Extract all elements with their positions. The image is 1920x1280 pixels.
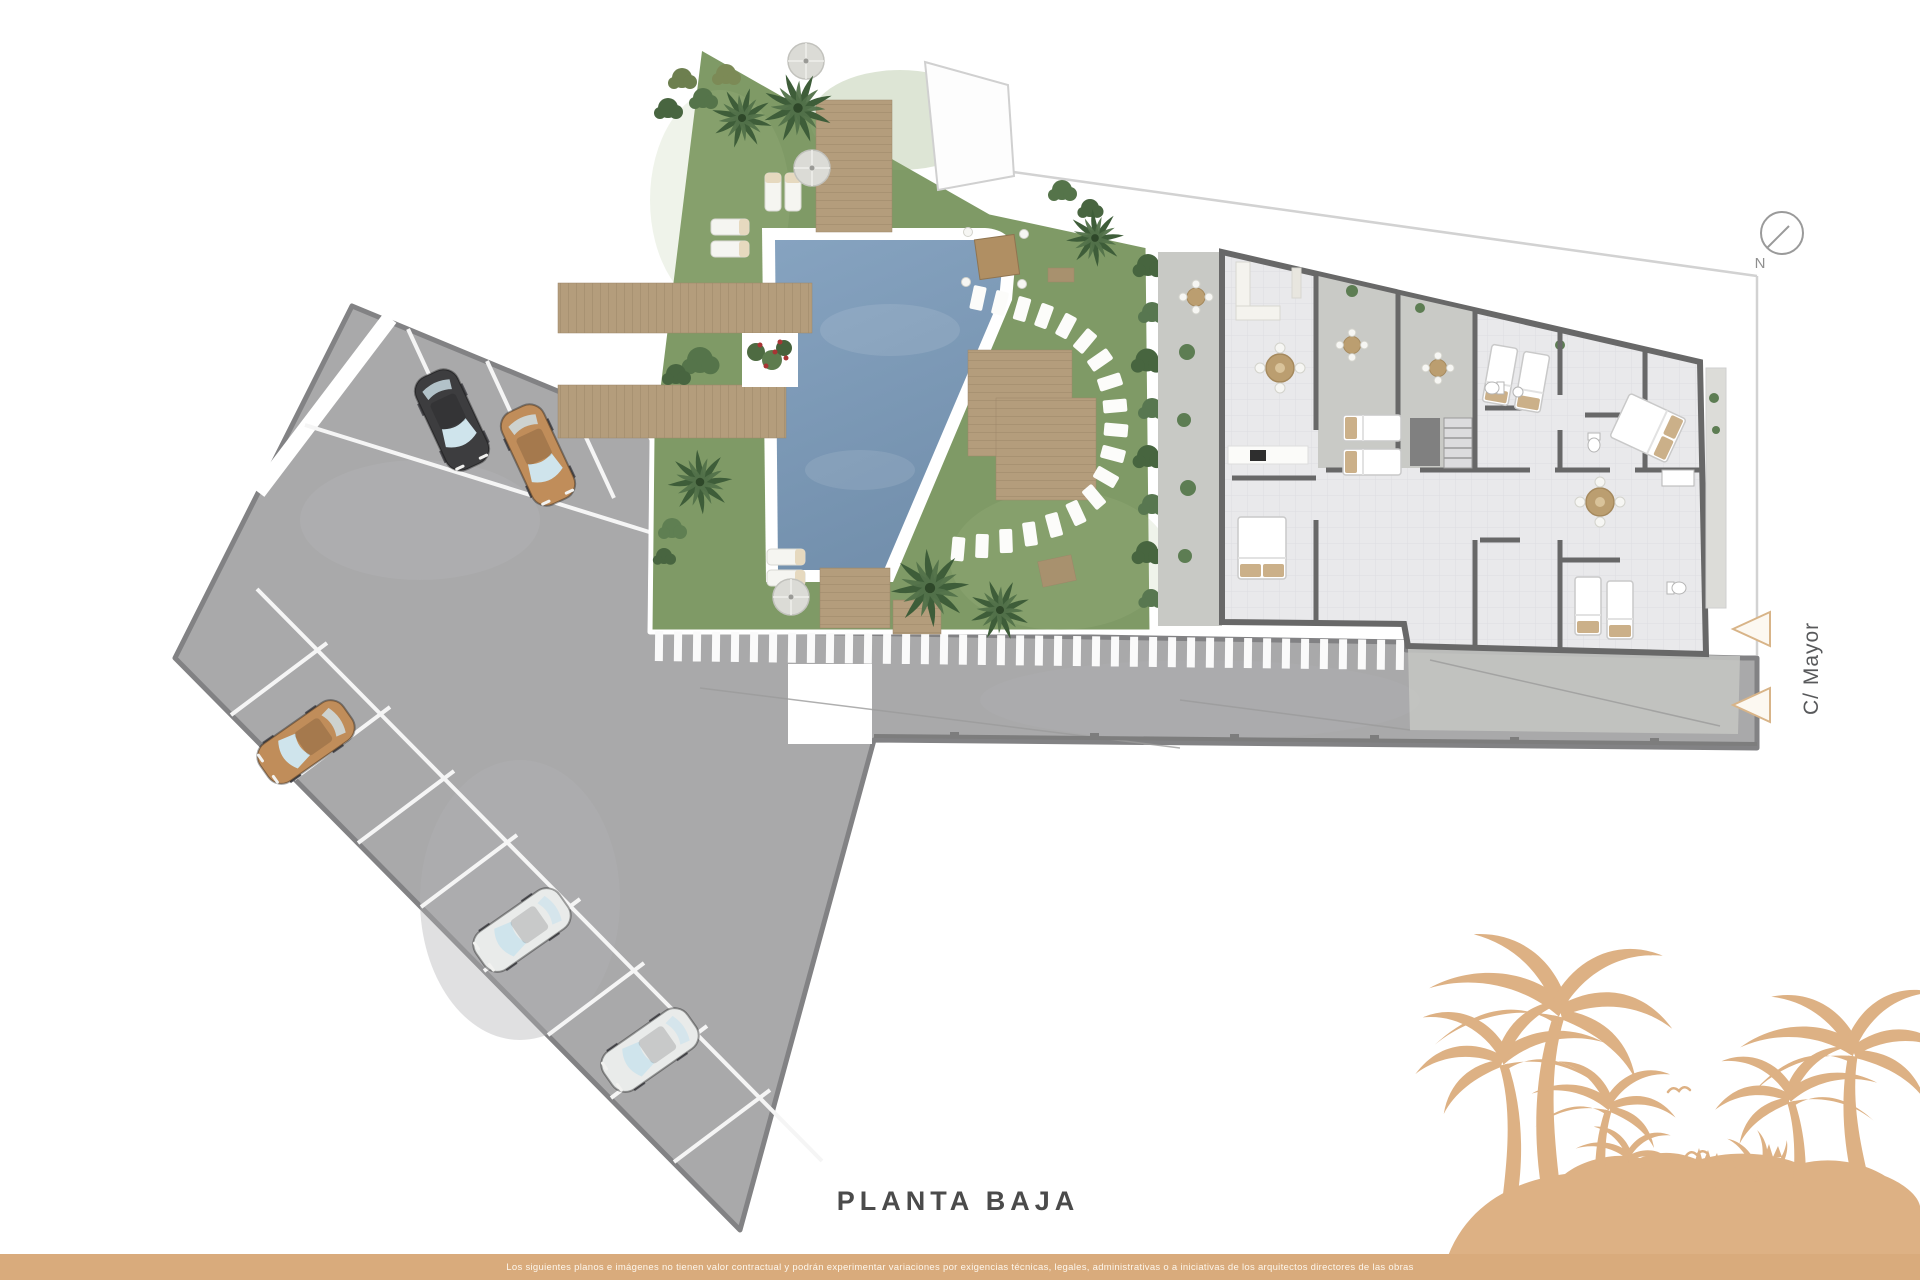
site-plan-page: N C/ Mayor PLANTA BAJA Los siguientes pl… bbox=[0, 0, 1920, 1280]
disclaimer-bar: Los siguientes planos e imágenes no tien… bbox=[0, 1254, 1920, 1280]
compass-icon: N bbox=[1755, 212, 1803, 272]
compass-north-label: N bbox=[1755, 255, 1766, 272]
beach-silhouette bbox=[1415, 934, 1920, 1256]
disclaimer-text: Los siguientes planos e imágenes no tien… bbox=[506, 1262, 1413, 1273]
seagull-icon bbox=[1668, 1087, 1690, 1092]
white-roof-wedge bbox=[925, 62, 1014, 190]
seagull-icon bbox=[1686, 1151, 1708, 1156]
entrance-arrow-icon bbox=[1733, 612, 1770, 646]
entrance-plaza bbox=[1408, 648, 1740, 734]
building-floorplan bbox=[1222, 252, 1726, 654]
site-plan-drawing: N C/ Mayor PLANTA BAJA bbox=[0, 0, 1920, 1280]
elevator bbox=[1410, 418, 1440, 466]
garden-area bbox=[558, 43, 1170, 652]
terrace-strip bbox=[1158, 252, 1222, 626]
staircase bbox=[1444, 418, 1472, 468]
umbrella-icon bbox=[773, 579, 809, 615]
side-terrace bbox=[1158, 252, 1222, 626]
street-label: C/ Mayor bbox=[1800, 622, 1823, 715]
right-balcony bbox=[1706, 368, 1726, 608]
page-title: PLANTA BAJA bbox=[837, 1186, 1080, 1216]
umbrella-icon bbox=[788, 43, 824, 79]
umbrella-icon bbox=[794, 150, 830, 186]
planter bbox=[742, 333, 798, 387]
